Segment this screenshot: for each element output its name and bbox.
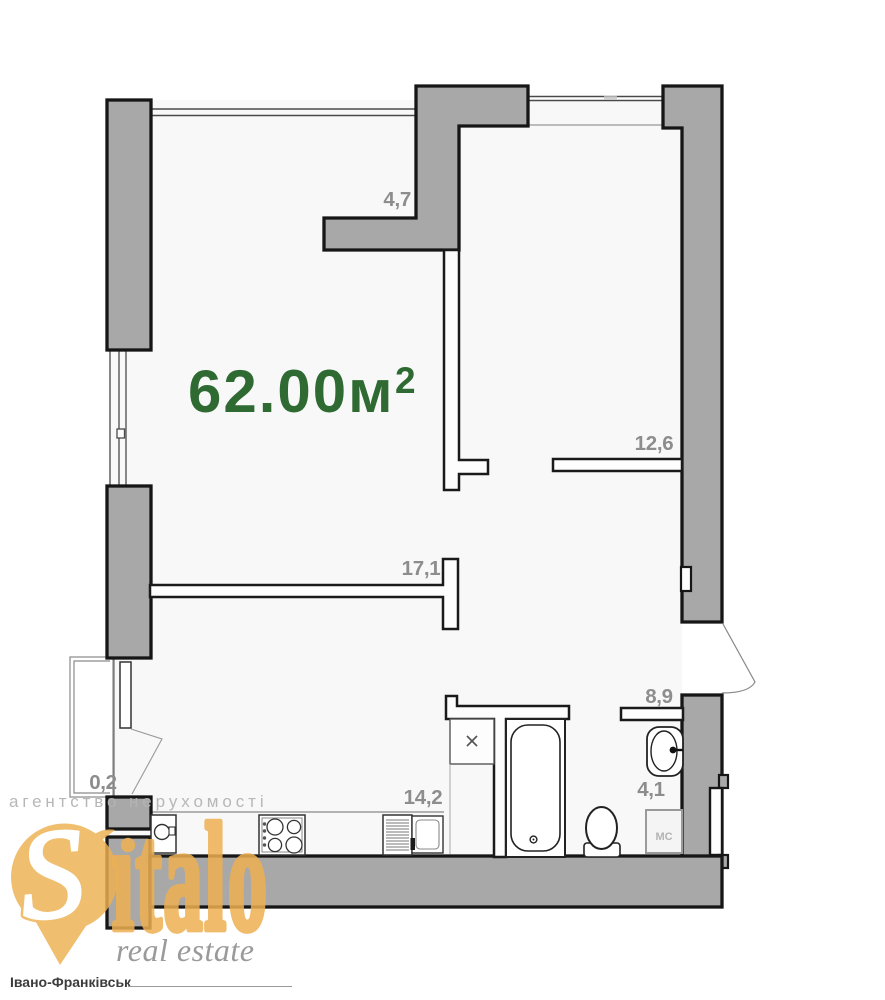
svg-text:4,7: 4,7 bbox=[383, 188, 411, 211]
svg-text:0,2: 0,2 bbox=[89, 771, 117, 794]
svg-text:real estate: real estate bbox=[116, 932, 255, 968]
svg-text:4,1: 4,1 bbox=[637, 778, 665, 801]
svg-text:8,9: 8,9 bbox=[645, 685, 673, 708]
svg-text:14,2: 14,2 bbox=[404, 786, 443, 809]
svg-text:62.00м: 62.00м bbox=[188, 358, 395, 425]
svg-text:S: S bbox=[14, 800, 90, 947]
svg-text:Івано-Франківськ: Івано-Франківськ bbox=[10, 974, 132, 990]
svg-text:17,1: 17,1 bbox=[402, 557, 441, 580]
svg-text:2: 2 bbox=[395, 360, 416, 401]
svg-text:МС: МС bbox=[655, 831, 672, 843]
svg-text:12,6: 12,6 bbox=[635, 432, 674, 455]
